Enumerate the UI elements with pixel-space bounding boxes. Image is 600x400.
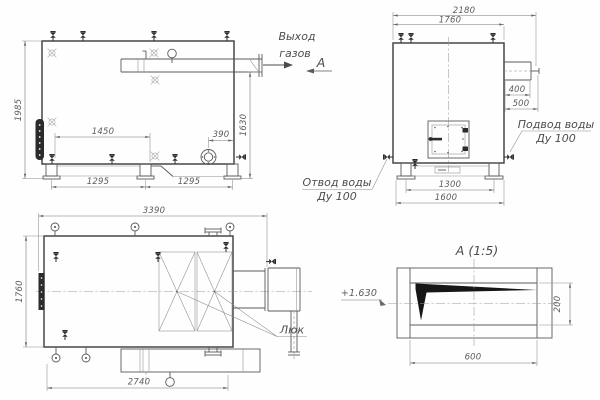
dim-1300-label: 1300 [439, 180, 461, 190]
dim-600-label: 600 [465, 353, 482, 363]
dim-200-label: 200 [553, 296, 563, 313]
water-outlet-line2: Ду 100 [316, 190, 357, 203]
water-inlet-line1: Подвод воды [518, 118, 595, 131]
top-fittings [51, 223, 234, 236]
supports [43, 164, 241, 179]
dim-1300: 1300 [406, 180, 494, 193]
front-flange-plan [39, 273, 45, 310]
water-inlet-valve [504, 154, 513, 160]
dim-390-label: 390 [213, 130, 230, 140]
section-a-letter: А [316, 55, 326, 70]
drain-valve [412, 160, 418, 169]
drawing-canvas: Выход газов А [0, 0, 600, 400]
hatch-label: Люк [279, 324, 305, 337]
elevation-label: +1.630 [341, 288, 377, 299]
dim-1630: 1630 [239, 72, 262, 179]
water-inlet-label: Подвод воды Ду 100 [510, 118, 595, 152]
centerline-marks [48, 49, 160, 161]
detail-title: А (1:5) [455, 243, 498, 258]
side-view: Выход газов А [14, 30, 332, 190]
valves-top-end [398, 34, 496, 43]
dim-1600-label: 1600 [435, 193, 457, 203]
water-outlet-line1: Отвод воды [303, 176, 372, 189]
dim-1295-left-label: 1295 [87, 177, 109, 187]
detail-view-a: А (1:5) +1.630 200 600 [341, 243, 573, 366]
end-view: 2180 1760 400 500 1300 1600 [302, 6, 595, 206]
weld-seam-wedge [416, 284, 538, 321]
dim-flue-height-label: 1630 [239, 114, 249, 136]
burner-flange [201, 150, 216, 165]
boiler-technical-drawing: Выход газов А [0, 0, 600, 400]
gas-outlet-label-line1: Выход [278, 30, 315, 43]
dim-1760-end: 1760 [393, 15, 504, 40]
sensor-pin [143, 51, 147, 59]
water-outlet-valve [384, 154, 393, 160]
thermometer [168, 49, 177, 63]
bottom-flange-nozzle [205, 347, 221, 357]
door-hinge-top [463, 128, 469, 133]
flue-duct-plan [233, 268, 300, 360]
hatch-label-leader: Люк [177, 292, 307, 337]
elevation-mark: +1.630 [341, 288, 386, 306]
dim-1295-right-label: 1295 [178, 177, 200, 187]
dim-height-label: 1985 [14, 99, 24, 121]
dim-200: 200 [539, 283, 573, 325]
door-hinge-bottom [463, 147, 469, 152]
dim-2180: 2180 [393, 6, 536, 66]
dim-1760-end-label: 1760 [439, 15, 461, 25]
dim-500-label: 500 [513, 99, 530, 109]
flue-duct-end [504, 62, 539, 80]
dim-2740: 2740 [47, 364, 228, 391]
dim-1450-label: 1450 [92, 127, 114, 137]
water-inlet-line2: Ду 100 [535, 132, 576, 145]
water-outlet-label: Отвод воды Ду 100 [302, 159, 387, 203]
dim-3390-label: 3390 [143, 206, 165, 216]
dim-1760-plan-label: 1760 [15, 280, 25, 302]
dim-400-label: 400 [509, 85, 526, 95]
dim-1450: 1450 [55, 127, 150, 162]
valves-top [50, 32, 230, 41]
dim-600: 600 [410, 340, 537, 366]
plan-view: Люк [15, 206, 312, 391]
flue-duct [121, 54, 262, 77]
dim-390: 390 [209, 130, 234, 148]
dim-2740-label: 2740 [128, 378, 150, 388]
gas-exit-arrow [263, 62, 293, 69]
top-flange-nozzle [205, 228, 221, 237]
front-flange [36, 119, 45, 160]
gas-outlet-label-line2: газов [279, 47, 311, 60]
